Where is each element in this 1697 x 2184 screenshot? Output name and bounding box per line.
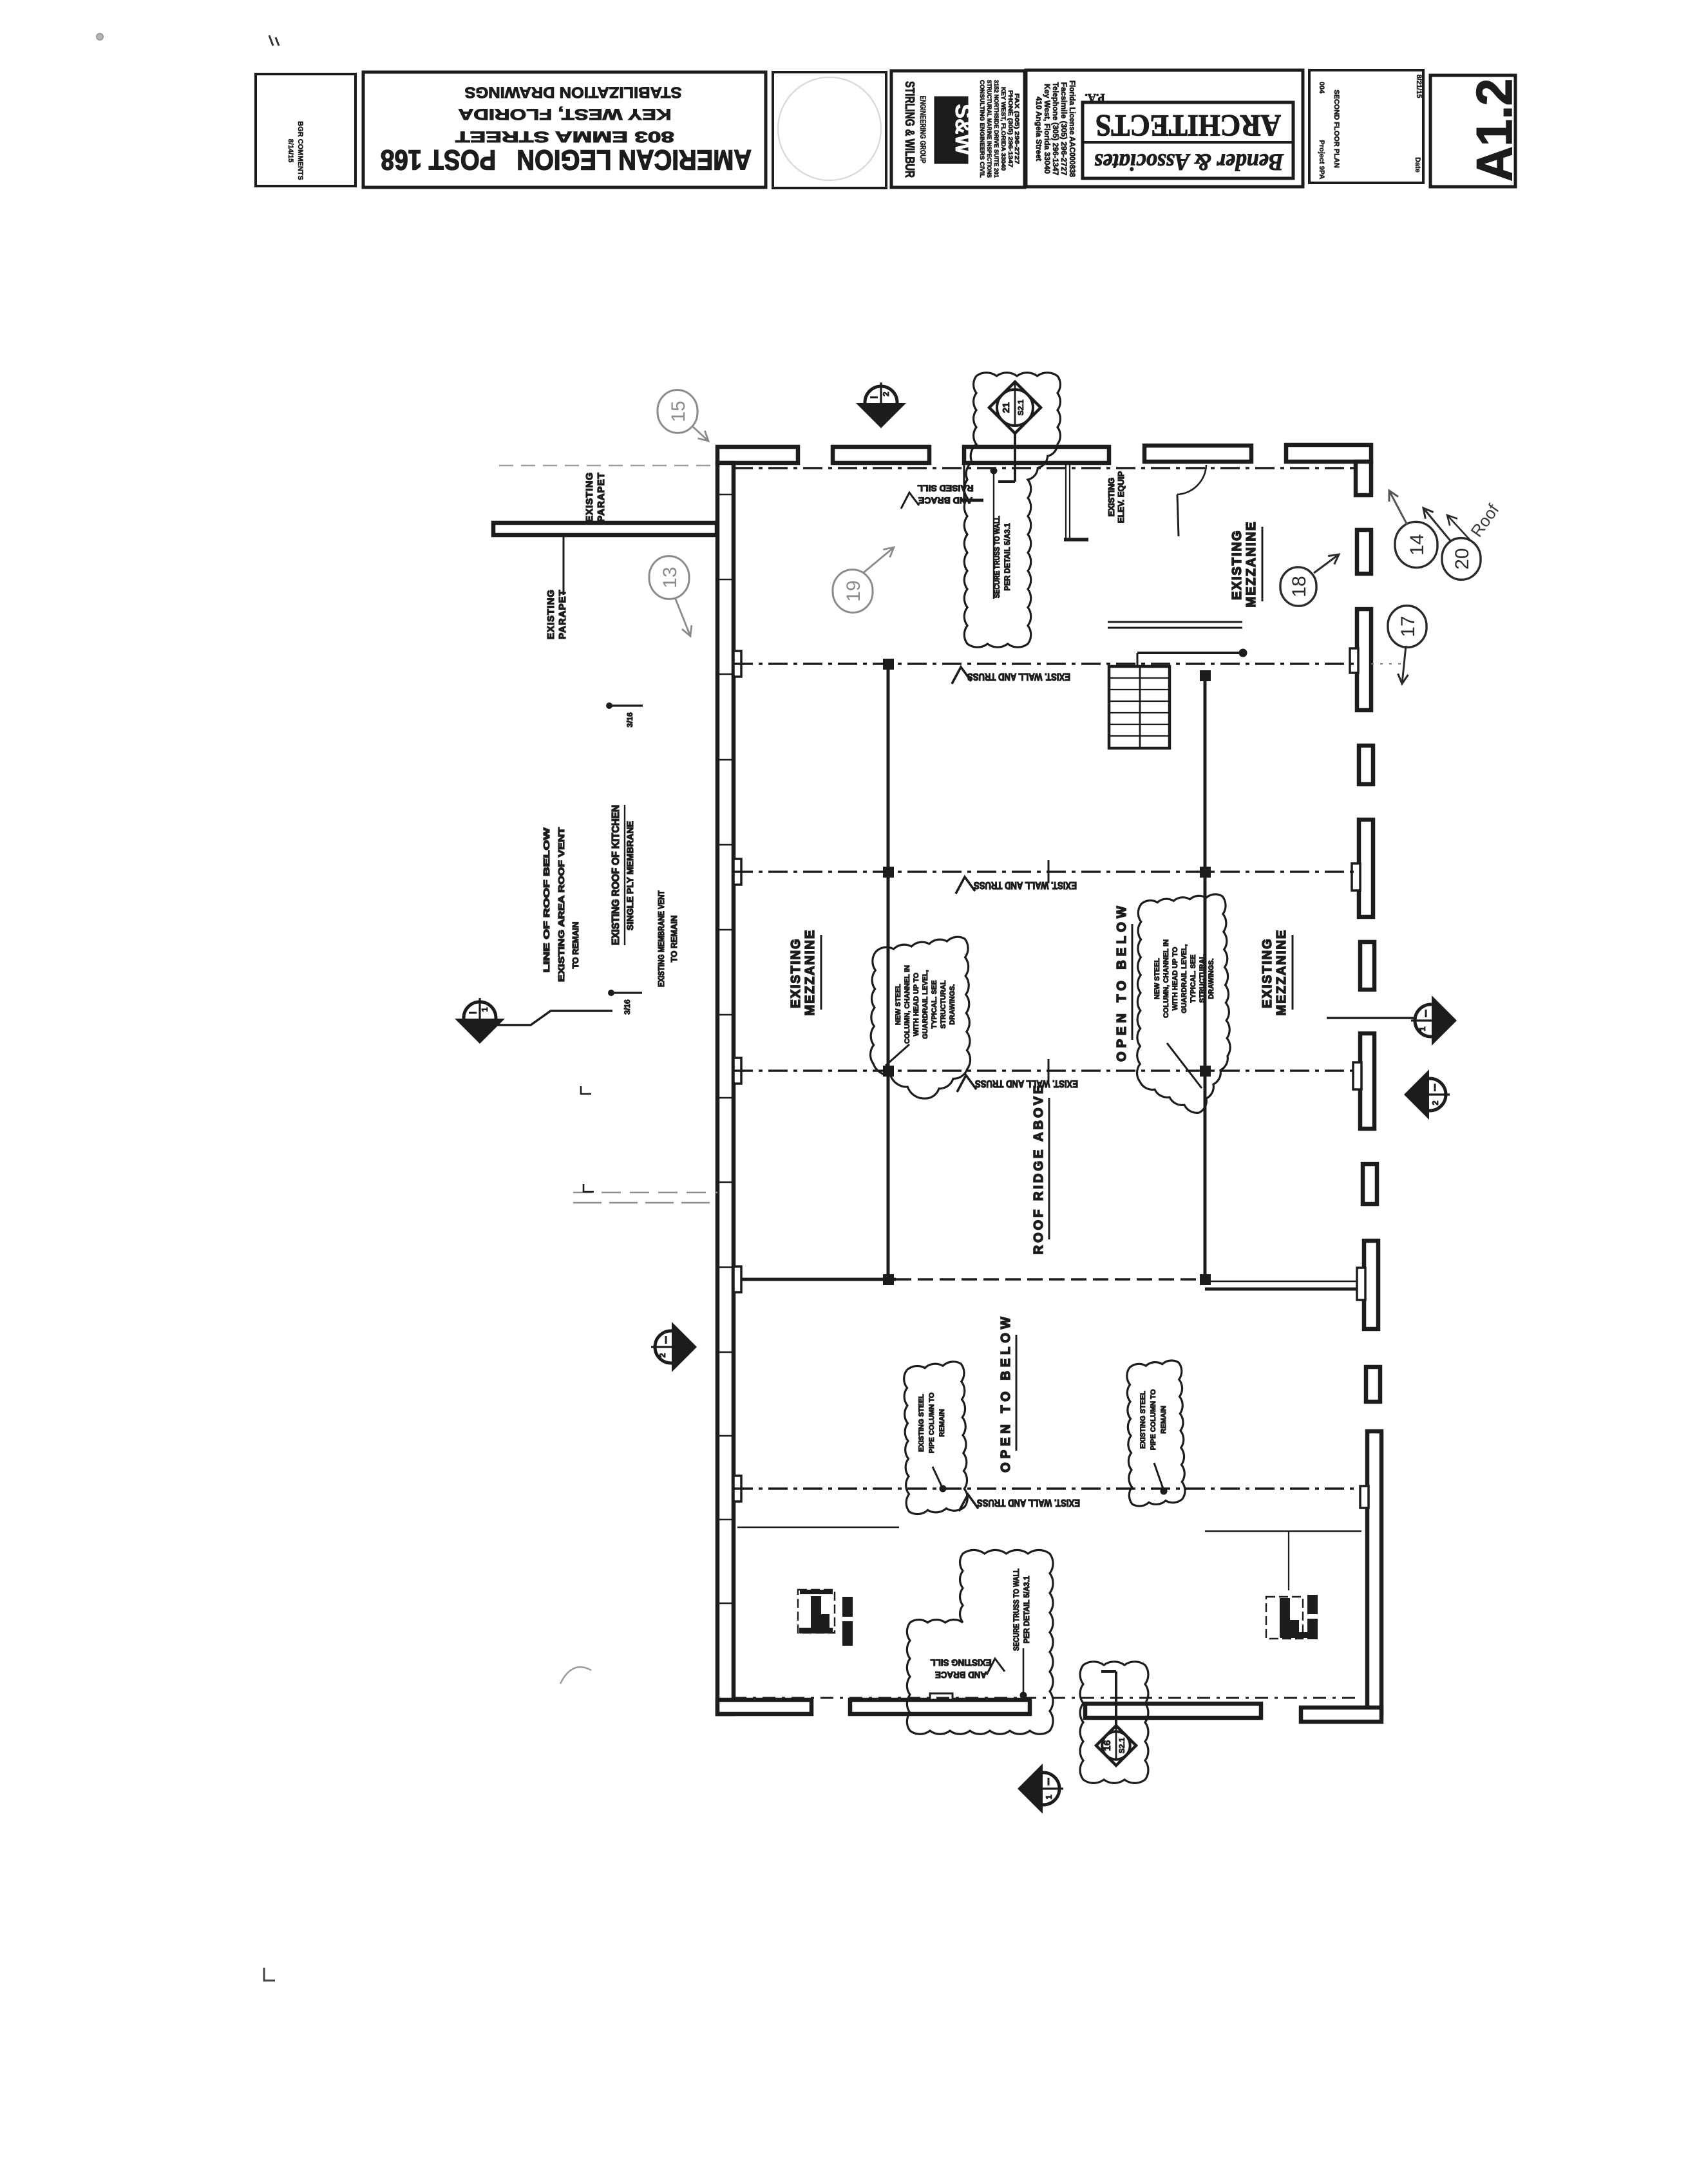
svg-text:EXISTING: EXISTING — [584, 472, 595, 522]
svg-text:1: 1 — [1417, 1026, 1427, 1031]
svg-text:13: 13 — [659, 567, 681, 588]
svg-text:MEZZANINE: MEZZANINE — [1244, 521, 1258, 608]
svg-text:Date: Date — [1414, 157, 1421, 173]
svg-text:COLUMN, CHANNEL IN: COLUMN, CHANNEL IN — [904, 965, 911, 1044]
svg-text:AMERICAN LEGION POST 168: AMERICAN LEGION POST 168 — [381, 144, 752, 175]
svg-text:COLUMN, CHANNEL IN: COLUMN, CHANNEL IN — [1162, 939, 1170, 1018]
svg-text:STRUCTURAL: STRUCTURAL — [940, 980, 947, 1028]
svg-text:STIRLING & WILBUR: STIRLING & WILBUR — [902, 81, 916, 178]
svg-text:FAX (305) 296-2727: FAX (305) 296-2727 — [1014, 93, 1020, 164]
svg-text:SECURE TRUSS TO WALL: SECURE TRUSS TO WALL — [1012, 1568, 1021, 1651]
svg-text:WITH HEAD UP TO: WITH HEAD UP TO — [1171, 946, 1179, 1010]
svg-text:STRUCTURAL: STRUCTURAL — [1199, 954, 1206, 1003]
svg-text:1: 1 — [1044, 1794, 1054, 1799]
svg-text:17: 17 — [1398, 616, 1419, 637]
svg-text:OPEN TO BELOW: OPEN TO BELOW — [999, 1313, 1013, 1473]
svg-text:PHONE (305) 296-1347: PHONE (305) 296-1347 — [1007, 90, 1014, 167]
svg-text:TYPICAL. SEE: TYPICAL. SEE — [1190, 954, 1197, 1003]
svg-text:SECOND FLOOR PLAN: SECOND FLOOR PLAN — [1332, 89, 1340, 168]
svg-text:PARAPET: PARAPET — [596, 472, 607, 522]
svg-text:EXISTING SILL: EXISTING SILL — [930, 1657, 991, 1668]
svg-text:CONSULTING ENGINEERS CIVIL: CONSULTING ENGINEERS CIVIL — [979, 80, 985, 178]
svg-text:EXIST. WALL AND TRUSS: EXIST. WALL AND TRUSS — [967, 671, 1070, 682]
svg-text:S&W: S&W — [951, 104, 975, 155]
svg-text:LINE OF ROOF BELOW: LINE OF ROOF BELOW — [542, 827, 551, 972]
svg-text:EXISTING: EXISTING — [1106, 478, 1116, 517]
svg-text:EXISTING: EXISTING — [789, 937, 803, 1008]
svg-text:MEZZANINE: MEZZANINE — [803, 929, 817, 1016]
svg-text:TYPICAL. SEE: TYPICAL. SEE — [931, 980, 938, 1028]
svg-text:TO REMAIN: TO REMAIN — [571, 922, 580, 969]
svg-text:WITH HEAD UP TO: WITH HEAD UP TO — [913, 972, 920, 1036]
svg-text:OPEN TO BELOW: OPEN TO BELOW — [1115, 902, 1129, 1062]
svg-text:S2.1: S2.1 — [1016, 399, 1025, 415]
svg-text:16: 16 — [1102, 1740, 1113, 1751]
svg-text:EXISTING STEEL: EXISTING STEEL — [918, 1394, 925, 1452]
svg-text:20: 20 — [1452, 548, 1473, 569]
svg-text:19: 19 — [843, 580, 864, 601]
svg-text:PER DETAIL 5/A3.1: PER DETAIL 5/A3.1 — [1003, 523, 1012, 590]
svg-text:Key West, Florida 33040: Key West, Florida 33040 — [1043, 84, 1052, 174]
svg-text:PIPE COLUMN TO: PIPE COLUMN TO — [1150, 1389, 1157, 1450]
svg-text:Telephone (305) 296-1347: Telephone (305) 296-1347 — [1051, 82, 1060, 176]
svg-text:S2.1: S2.1 — [1117, 1737, 1126, 1753]
svg-text:DRAWINGS.: DRAWINGS. — [1208, 958, 1215, 999]
svg-text:2: 2 — [1430, 1100, 1440, 1105]
svg-text:803 EMMA STREET: 803 EMMA STREET — [455, 128, 674, 146]
svg-text:STRUCTURAL MARINE INSPECTIONS: STRUCTURAL MARINE INSPECTIONS — [986, 80, 992, 178]
svg-text:EXISTING MEMBRANE VENT: EXISTING MEMBRANE VENT — [656, 890, 666, 987]
svg-text:EXISTING ROOF OF KITCHEN: EXISTING ROOF OF KITCHEN — [611, 805, 621, 945]
svg-text:ARCHITECTS: ARCHITECTS — [1095, 108, 1281, 142]
svg-text:A1.2: A1.2 — [1466, 79, 1522, 182]
svg-text:18: 18 — [1289, 576, 1310, 597]
svg-text:EXIST. WALL AND TRUSS: EXIST. WALL AND TRUSS — [974, 880, 1077, 890]
svg-text:ENGINEERING GROUP: ENGINEERING GROUP — [918, 96, 927, 164]
svg-text:2: 2 — [881, 391, 891, 396]
svg-text:15: 15 — [668, 400, 689, 422]
svg-text:STABILIZATION DRAWINGS: STABILIZATION DRAWINGS — [465, 84, 682, 101]
svg-text:3152 NORTHSIDE DRIVE SUITE 201: 3152 NORTHSIDE DRIVE SUITE 201 — [993, 80, 1000, 178]
svg-text:EXIST. WALL AND TRUSS: EXIST. WALL AND TRUSS — [977, 1497, 1080, 1508]
svg-text:Facsimile (305) 296-2727: Facsimile (305) 296-2727 — [1059, 82, 1068, 176]
svg-text:EXISTING: EXISTING — [1230, 529, 1244, 599]
svg-text:EXISTING STEEL: EXISTING STEEL — [1139, 1391, 1147, 1449]
svg-text:004: 004 — [1318, 82, 1325, 94]
svg-text:SECURE TRUSS TO WALL: SECURE TRUSS TO WALL — [992, 516, 1001, 598]
svg-text:ELEV. EQUIP: ELEV. EQUIP — [1116, 471, 1126, 523]
svg-text:EXISTING: EXISTING — [545, 589, 556, 639]
svg-text:1: 1 — [480, 1007, 489, 1012]
svg-text:8/21/15: 8/21/15 — [1415, 75, 1423, 99]
svg-text:KEY WEST, FLORIDA: KEY WEST, FLORIDA — [459, 106, 672, 123]
svg-text:Project 9PA: Project 9PA — [1318, 140, 1325, 180]
svg-text:PER DETAIL 5/A3.1: PER DETAIL 5/A3.1 — [1022, 1576, 1031, 1643]
svg-text:Florida License AAC000838: Florida License AAC000838 — [1068, 80, 1077, 177]
svg-text:AND BRACE: AND BRACE — [935, 1670, 987, 1680]
svg-text:EXISTING: EXISTING — [1260, 937, 1275, 1008]
svg-text:GUARDRAIL LEVEL,: GUARDRAIL LEVEL, — [922, 970, 929, 1039]
svg-text:EXISTING AREA ROOF VENT: EXISTING AREA ROOF VENT — [556, 827, 566, 982]
svg-text:Bender & Associates: Bender & Associates — [1094, 149, 1284, 175]
svg-text:REMAIN: REMAIN — [938, 1409, 946, 1436]
svg-text:GUARDRAIL LEVEL,: GUARDRAIL LEVEL, — [1180, 944, 1188, 1013]
svg-text:21: 21 — [1001, 402, 1012, 413]
svg-text:TO REMAIN: TO REMAIN — [669, 916, 679, 963]
svg-text:3/16: 3/16 — [623, 999, 632, 1015]
svg-text:BGR COMMENTS: BGR COMMENTS — [296, 121, 304, 180]
svg-text:KEY WEST, FLORIDA 33040: KEY WEST, FLORIDA 33040 — [1000, 87, 1007, 171]
svg-text:PARAPET: PARAPET — [557, 589, 568, 639]
svg-text:NEW STEEL: NEW STEEL — [1153, 958, 1161, 999]
svg-text:14: 14 — [1407, 534, 1428, 555]
svg-text:REMAIN: REMAIN — [1160, 1406, 1168, 1433]
svg-text:3/16: 3/16 — [625, 712, 634, 728]
svg-text:MEZZANINE: MEZZANINE — [1275, 929, 1289, 1016]
svg-text:PIPE COLUMN TO: PIPE COLUMN TO — [928, 1392, 936, 1453]
svg-text:DRAWINGS.: DRAWINGS. — [949, 984, 956, 1025]
svg-text:ROOF RIDGE ABOVE: ROOF RIDGE ABOVE — [1032, 1083, 1046, 1255]
svg-text:8/14/15: 8/14/15 — [287, 139, 294, 163]
svg-text:EXIST. WALL AND TRUSS: EXIST. WALL AND TRUSS — [975, 1078, 1078, 1089]
svg-text:NEW STEEL: NEW STEEL — [895, 984, 902, 1025]
svg-text:SINGLE PLY MEMBRANE: SINGLE PLY MEMBRANE — [625, 821, 635, 930]
svg-text:410 Angela Street: 410 Angela Street — [1034, 97, 1043, 161]
svg-text:2: 2 — [658, 1353, 667, 1357]
